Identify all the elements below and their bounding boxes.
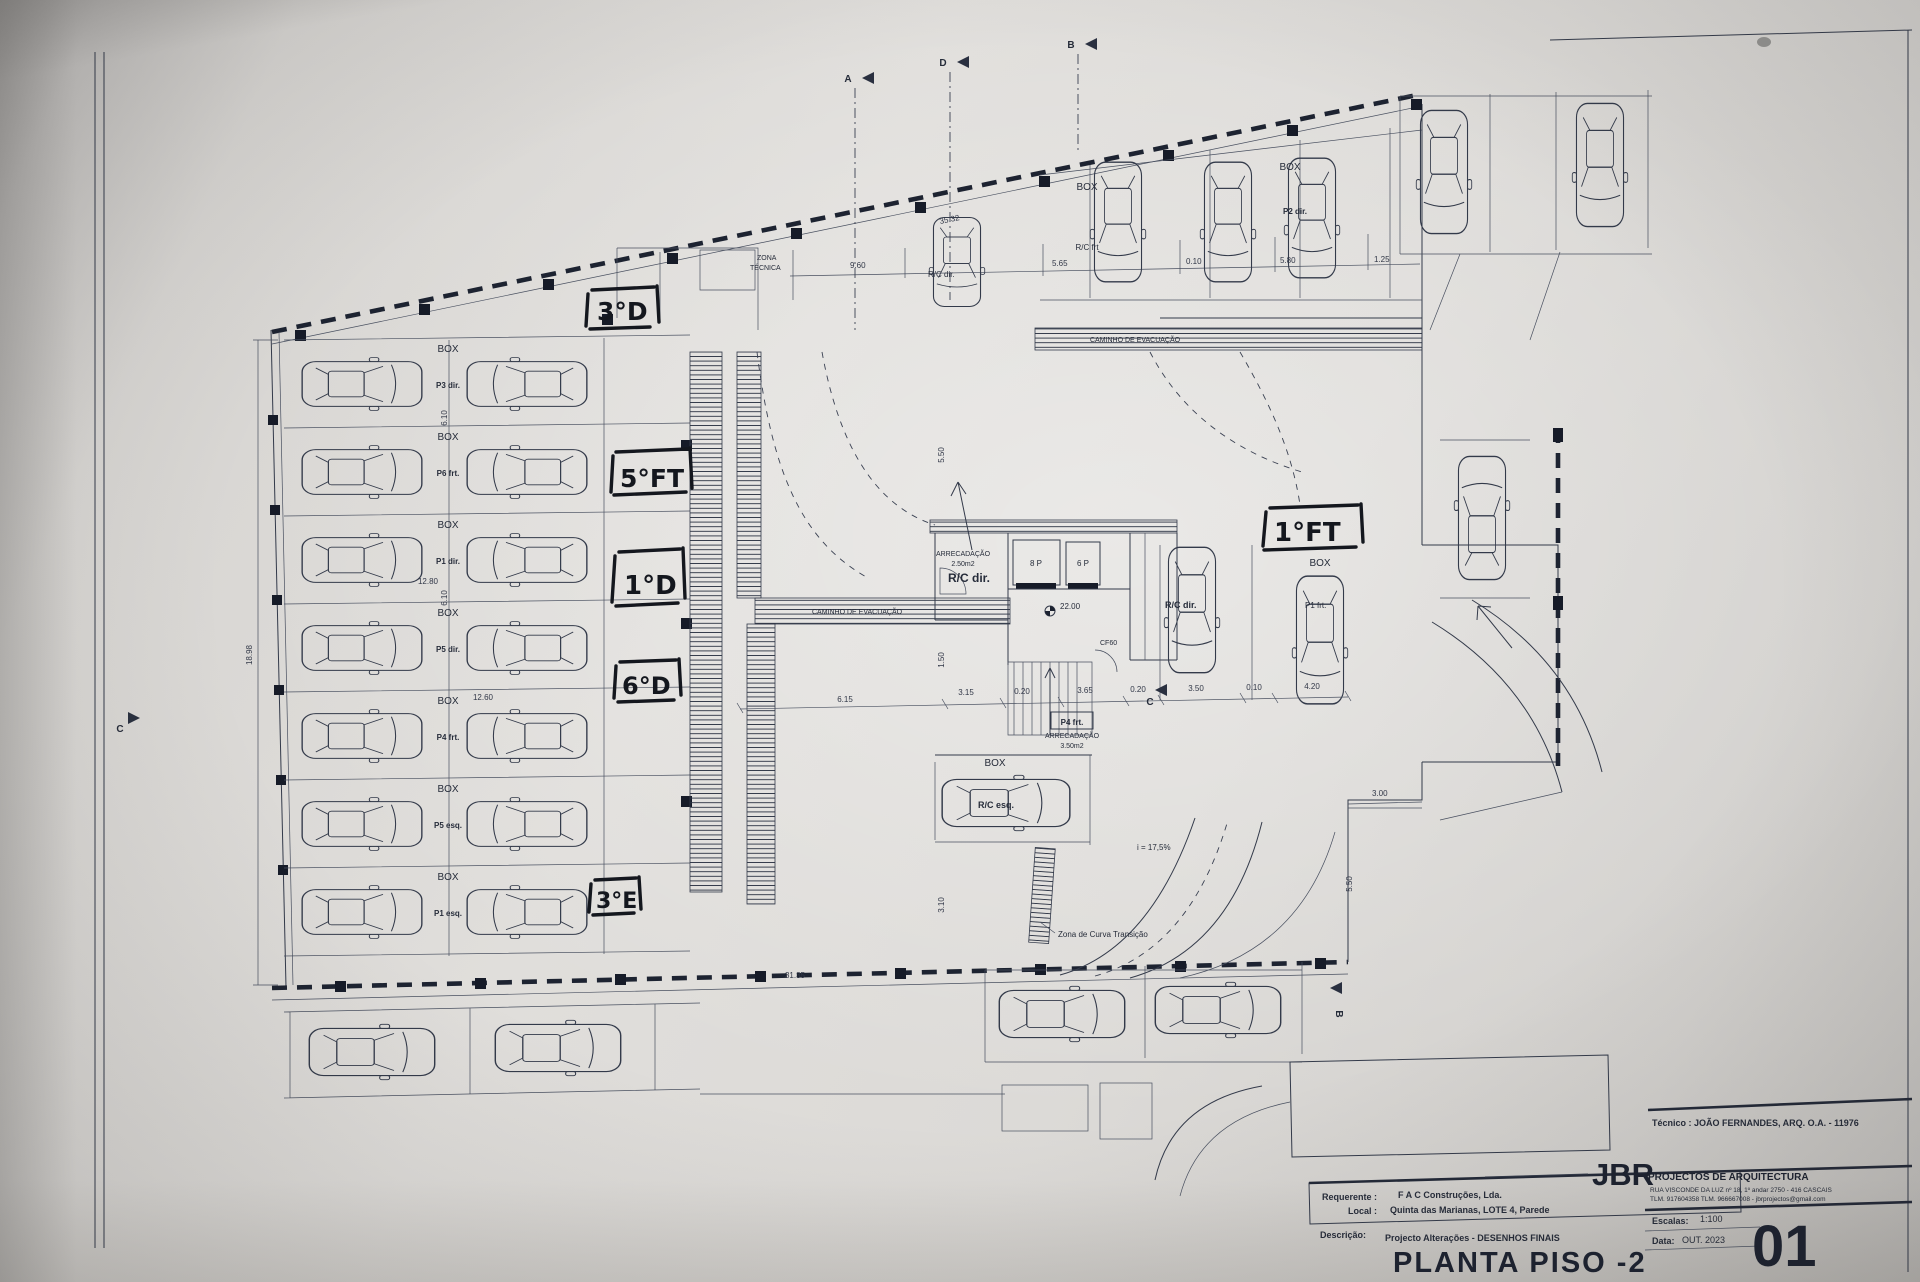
stall-box-label: BOX xyxy=(437,520,458,531)
rc-dir-top-label: R/C dir. xyxy=(928,270,955,279)
section-b: B xyxy=(1067,40,1074,51)
exterior-top-right xyxy=(1400,90,1652,340)
handwritten-1ft: 1°FT xyxy=(1274,518,1341,548)
handwritten-1d: 1°D xyxy=(624,571,677,601)
dim-4-20: 4.20 xyxy=(1304,682,1320,691)
dim-0-20: 0.20 xyxy=(1130,685,1146,694)
dimension-chain: 6.15 3.15 0.20 3.65 0.20 3.50 0.10 4.20 … xyxy=(737,447,1351,913)
dim-18-98: 18.98 xyxy=(245,644,254,665)
stall-label: P1 dir. xyxy=(436,557,460,566)
sheet-frame xyxy=(95,30,1912,1272)
caminho-evacuacao-top: CAMINHO DE EVACUAÇÃO xyxy=(1090,335,1181,344)
zona-tecnica-label-2: TÉCNICA xyxy=(750,263,781,272)
technician-line: Técnico : JOÃO FERNANDES, ARQ. O.A. - 11… xyxy=(1652,1118,1859,1128)
zona-tecnica-label-1: ZONA xyxy=(757,255,777,262)
dim-5-50-v: 5.50 xyxy=(937,447,946,463)
arrecadacao-stairs-area: 3.50m2 xyxy=(1060,743,1083,750)
curva-transicao-label: Zona de Curva Transição xyxy=(1058,930,1148,939)
stall-label: P3 dir. xyxy=(436,381,460,390)
scale-label: Escalas: xyxy=(1652,1216,1689,1226)
box-label: BOX xyxy=(1076,182,1097,193)
handwritten-5ft: 5°FT xyxy=(620,464,684,493)
building-core: 8 P 6 P ARRECADAÇÃO 2.50m2 R/C dir. 22.0… xyxy=(930,520,1177,755)
section-b2: B xyxy=(1333,1010,1344,1017)
dim-1-50-v: 1.50 xyxy=(937,652,946,668)
rc-esq-label: R/C esq. xyxy=(978,800,1014,810)
hatched-wall xyxy=(690,352,722,892)
handwritten-3e: 3°E xyxy=(596,889,637,914)
arrecadacao-area: 2.50m2 xyxy=(951,561,974,568)
dim-6-15: 6.15 xyxy=(837,695,853,704)
p2-dir-label: P2 dir. xyxy=(1283,207,1307,216)
drawing-title: PLANTA PISO -2 xyxy=(1393,1247,1647,1279)
dim-3-65: 3.65 xyxy=(1077,686,1093,695)
dim-0-10: 0.10 xyxy=(1246,683,1262,692)
local-value: Quinta das Marianas, LOTE 4, Parede xyxy=(1390,1205,1550,1215)
date-label: Data: xyxy=(1652,1236,1675,1246)
requerente-value: F A C Construções, Lda. xyxy=(1398,1190,1502,1200)
requerente-label: Requerente : xyxy=(1322,1192,1377,1202)
floor-plan-drawing: BOX P3 dir. BOX P6 frt. BOX P1 dir. BOX … xyxy=(0,0,1920,1282)
firm-contact: TLM. 917604358 TLM. 966667008 - jbrproje… xyxy=(1650,1196,1826,1203)
firm-address: RUA VISCONDE DA LUZ nº 18, 1º andar 2750… xyxy=(1650,1187,1832,1194)
dim-12-80: 12.80 xyxy=(418,577,439,586)
arrecadacao-stairs-label: ARRECADAÇÃO xyxy=(1045,731,1100,740)
dim-5-65: 5.65 xyxy=(1052,259,1068,268)
firm-logo: JBR xyxy=(1592,1157,1654,1192)
dim-6-10: 6.10 xyxy=(440,590,449,606)
ramp-slope-label: i = 17,5% xyxy=(1137,843,1171,852)
structural-columns xyxy=(268,99,1563,992)
sheet-number: 01 xyxy=(1752,1214,1817,1279)
plan-boundary xyxy=(271,94,1558,1000)
dim-6-10: 6.10 xyxy=(440,410,449,426)
stall-box-label: BOX xyxy=(437,696,458,707)
section-d: D xyxy=(939,58,946,69)
stall-label: P1 esq. xyxy=(434,909,462,918)
rc-dir-bay-label: R/C dir. xyxy=(1165,600,1197,610)
section-a: A xyxy=(844,74,851,85)
photographed-drawing-sheet: BOX P3 dir. BOX P6 frt. BOX P1 dir. BOX … xyxy=(0,0,1920,1282)
rc-dir-core-label: R/C dir. xyxy=(948,571,990,585)
box-label: BOX xyxy=(984,758,1005,769)
stall-label: P4 frt. xyxy=(437,733,460,742)
elevator-right-label: 6 P xyxy=(1077,559,1089,568)
dim-31-35: 31.35 xyxy=(785,971,806,980)
title-block: Técnico : JOÃO FERNANDES, ARQ. O.A. - 11… xyxy=(1290,1055,1912,1279)
exterior-bottom-bays: 31.35 xyxy=(284,962,1302,1196)
box-label: BOX xyxy=(1279,162,1300,173)
top-zone: ZONA TÉCNICA 35.32 9.60 5.65 0.10 5.80 1… xyxy=(617,128,1422,350)
handwritten-3d: 3°D xyxy=(597,297,648,326)
stall-label: P5 dir. xyxy=(436,645,460,654)
stall-box-label: BOX xyxy=(437,872,458,883)
dim-5-50-right: 5.50 xyxy=(1345,876,1354,892)
descricao-label: Descrição: xyxy=(1320,1230,1366,1240)
arrecadacao-label: ARRECADAÇÃO xyxy=(936,549,991,558)
caminho-evacuacao-mid: CAMINHO DE EVACUAÇÃO xyxy=(812,607,903,616)
date-value: OUT. 2023 xyxy=(1682,1235,1725,1245)
firm-name: PROJECTOS DE ARQUITECTURA xyxy=(1648,1172,1809,1183)
section-c: C xyxy=(116,724,123,735)
rc-frt-label: R/C frt xyxy=(1075,243,1099,252)
dim-3-15: 3.15 xyxy=(958,688,974,697)
fire-door-label: CF60 xyxy=(1100,640,1117,647)
section-c2: C xyxy=(1146,697,1153,708)
stall-box-label: BOX xyxy=(437,344,458,355)
stall-box-label: BOX xyxy=(437,608,458,619)
dim-1-25: 1.25 xyxy=(1374,255,1390,264)
dim-0-20: 0.20 xyxy=(1014,687,1030,696)
local-label: Local : xyxy=(1348,1206,1377,1216)
dim-3-10-v: 3.10 xyxy=(937,897,946,913)
punch-mark xyxy=(1757,37,1771,47)
bottom-ramp: BOX R/C esq. i = 17,5% Zona de Curva Tra… xyxy=(935,755,1335,978)
handwritten-6d: 6°D xyxy=(622,672,671,700)
level-marker-value: 22.00 xyxy=(1060,602,1081,611)
elevator-left-label: 8 P xyxy=(1030,559,1042,568)
dim-3-00: 3.00 xyxy=(1372,789,1388,798)
exterior-right-street xyxy=(1432,440,1602,820)
stall-label: P6 frt. xyxy=(437,469,460,478)
p1-frt-label: P1 frt. xyxy=(1305,601,1326,610)
dim-9-60: 9.60 xyxy=(850,261,866,270)
dim-3-50: 3.50 xyxy=(1188,684,1204,693)
box-label: BOX xyxy=(1309,558,1330,569)
stall-box-label: BOX xyxy=(437,432,458,443)
descricao-value: Projecto Alterações - DESENHOS FINAIS xyxy=(1385,1233,1560,1243)
left-parking-block: BOX P3 dir. BOX P6 frt. BOX P1 dir. BOX … xyxy=(284,335,722,956)
right-bays: R/C dir. BOX P1 frt. 3.00 5.50 xyxy=(1160,545,1422,892)
stall-label: P5 esq. xyxy=(434,821,462,830)
stall-box-label: BOX xyxy=(437,784,458,795)
scale-value: 1:100 xyxy=(1700,1214,1723,1224)
p4-frt-label: P4 frt. xyxy=(1061,718,1084,727)
dim-0-10: 0.10 xyxy=(1186,257,1202,266)
dim-12-60: 12.60 xyxy=(473,693,494,702)
